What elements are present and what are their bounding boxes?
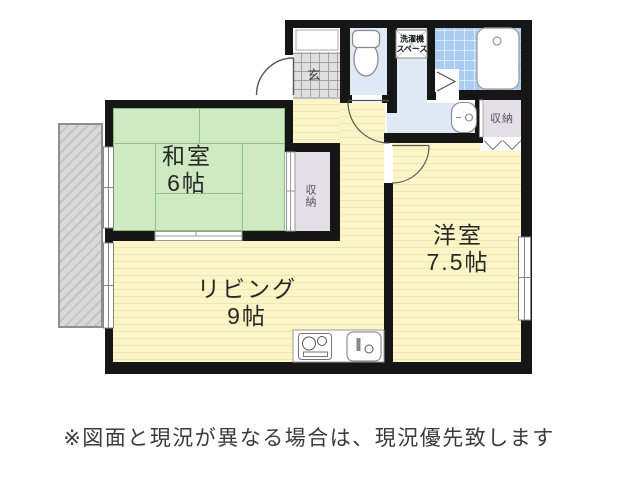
washitsu-window xyxy=(104,147,114,228)
youshitsu-label: 洋室 7.5帖 xyxy=(427,222,490,276)
washitsu-name: 和室 xyxy=(162,143,212,170)
stove xyxy=(299,334,332,360)
bath-folding-door xyxy=(435,69,459,92)
entry-door-arc xyxy=(257,58,294,95)
washitsu-label: 和室 6帖 xyxy=(162,143,212,197)
toilet-fixture xyxy=(353,31,380,77)
washer-line1: 洗濯機 xyxy=(396,35,427,45)
floorplan-canvas: 和室 6帖 リビング 9帖 洋室 7.5帖 玄 収納 収納 洗濯機 スペース ※… xyxy=(0,0,640,480)
washitsu-size: 6帖 xyxy=(162,170,212,197)
closet-hall-sliding-door xyxy=(287,152,296,231)
living-name: リビング xyxy=(197,276,297,303)
youshitsu-window xyxy=(519,237,531,320)
washer-space-label: 洗濯機 スペース xyxy=(396,35,427,54)
kitchen-sink xyxy=(347,332,381,361)
washbasin xyxy=(452,103,477,133)
disclaimer-text: ※図面と現況が異なる場合は、現況優先致します xyxy=(0,422,618,452)
living-window xyxy=(104,243,114,328)
washer-line2: スペース xyxy=(396,44,427,54)
closet-right-label: 収納 xyxy=(490,110,514,126)
toilet-door-arc xyxy=(348,101,389,144)
youshitsu-name: 洋室 xyxy=(427,222,490,249)
genkan-label: 玄 xyxy=(307,65,320,84)
bathtub xyxy=(477,28,519,89)
living-size: 9帖 xyxy=(197,303,297,330)
living-label: リビング 9帖 xyxy=(197,276,297,330)
youshitsu-door-arc xyxy=(392,146,429,184)
genkan-cabinet xyxy=(296,30,338,50)
closet-right-sliding-door xyxy=(480,100,484,137)
washitsu-sliding-door xyxy=(155,232,242,241)
closet-hall-label: 収納 xyxy=(302,184,318,208)
kitchen-counter xyxy=(293,330,384,362)
youshitsu-size: 7.5帖 xyxy=(427,249,490,276)
closet-right-door-marks xyxy=(484,141,521,150)
